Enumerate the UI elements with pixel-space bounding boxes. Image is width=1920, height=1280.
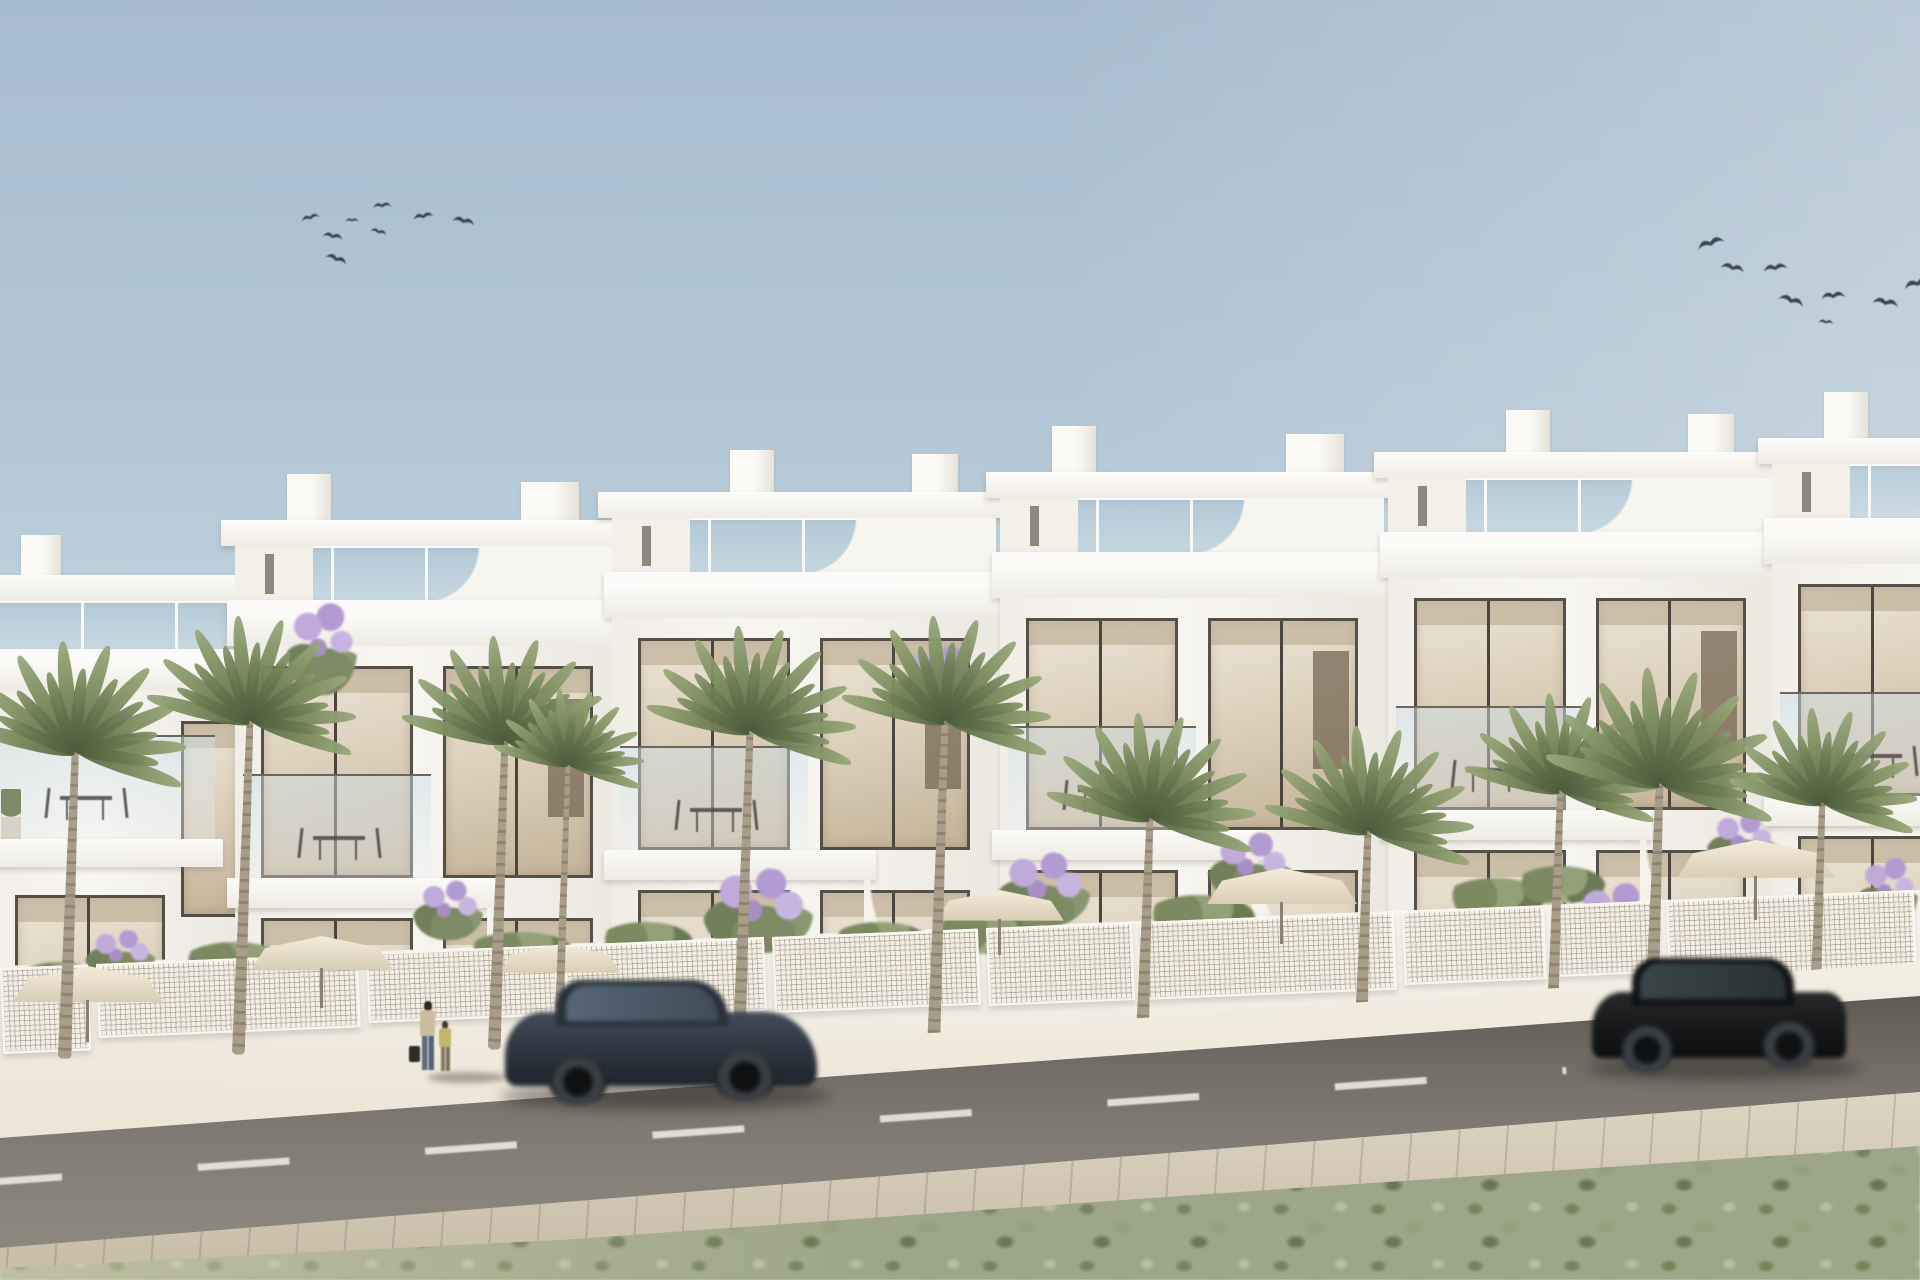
parasol-pole xyxy=(1754,876,1757,920)
roof-slab xyxy=(221,520,635,546)
penthouse-volume xyxy=(612,518,690,572)
penthouse-curved-wall xyxy=(800,518,996,572)
roof-chimney xyxy=(912,454,958,494)
roof-chimney xyxy=(1506,410,1550,458)
car-window-glass xyxy=(566,985,718,1021)
roof-fascia-band xyxy=(992,552,1394,598)
roof-fascia-band xyxy=(1380,532,1782,578)
roof-chimney xyxy=(521,482,579,522)
parasol-umbrella xyxy=(251,936,394,1012)
bird-icon xyxy=(372,197,393,211)
parasol-pole xyxy=(998,919,1001,955)
roof-slab xyxy=(0,575,257,601)
penthouse-volume xyxy=(1388,478,1466,532)
penthouse-curved-wall xyxy=(1576,478,1772,532)
car-wheel xyxy=(1762,1022,1816,1070)
penthouse-volume xyxy=(235,546,313,600)
child-pedestrian-torso xyxy=(439,1028,451,1048)
roof-chimney xyxy=(21,535,61,577)
parasol-canopy xyxy=(251,936,394,970)
penthouse-slit-window xyxy=(1802,472,1811,512)
parasol-pole xyxy=(1280,902,1283,944)
parasol-canopy xyxy=(1207,868,1357,904)
adult-pedestrian-torso xyxy=(420,1010,435,1037)
penthouse-slit-window xyxy=(1418,486,1427,526)
roof-fascia-band xyxy=(1764,518,1920,564)
bird-icon xyxy=(1818,315,1835,326)
balcony-table-and-chairs xyxy=(40,780,132,824)
parasol-pole xyxy=(86,1000,89,1042)
penthouse-curved-wall xyxy=(423,546,619,600)
parasol-umbrella xyxy=(1677,840,1835,924)
lavender-bush xyxy=(413,880,483,940)
balcony-slab xyxy=(0,839,223,867)
roof-fascia-band xyxy=(604,572,1006,618)
adult-pedestrian-legs xyxy=(422,1036,434,1070)
parasol-umbrella xyxy=(936,890,1064,958)
car-window-glass xyxy=(1640,963,1786,999)
lattice-fence-panel xyxy=(1402,905,1547,985)
child-pedestrian-legs xyxy=(441,1047,450,1071)
penthouse-slit-window xyxy=(642,526,651,566)
penthouse-slit-window xyxy=(1030,506,1039,546)
roof-slab xyxy=(598,492,1012,518)
parasol-canopy xyxy=(1677,840,1835,878)
parasol-umbrella xyxy=(1207,868,1357,948)
penthouse-volume xyxy=(1000,498,1078,552)
penthouse-slit-window xyxy=(265,554,274,594)
roof-chimney xyxy=(1688,414,1734,454)
roof-chimney xyxy=(730,450,774,498)
roof-chimney xyxy=(1052,426,1096,474)
pedestrian-shadow xyxy=(428,1072,506,1083)
roof-chimney xyxy=(287,474,331,522)
roof-chimney xyxy=(1824,392,1868,440)
parasol-canopy xyxy=(936,890,1064,921)
shopping-bag xyxy=(409,1046,420,1062)
penthouse-volume xyxy=(1772,464,1850,518)
bird-icon xyxy=(345,215,359,223)
parasol-pole xyxy=(320,968,323,1008)
bird-icon xyxy=(1819,285,1846,303)
parasol-canopy xyxy=(13,966,163,1002)
parasol-umbrella xyxy=(13,966,163,1046)
car-wheel xyxy=(714,1052,776,1102)
balcony-table-and-chairs xyxy=(293,820,385,864)
roof-slab xyxy=(1374,452,1788,478)
roof-slab xyxy=(1758,438,1920,464)
roof-slab xyxy=(986,472,1400,498)
penthouse-curved-wall xyxy=(1188,498,1384,552)
potted-plant xyxy=(1,789,21,839)
car-wheel xyxy=(549,1058,607,1106)
car-wheel xyxy=(1621,1026,1673,1074)
scene-townhouse-render xyxy=(0,0,1920,1280)
roof-chimney xyxy=(1286,434,1344,474)
